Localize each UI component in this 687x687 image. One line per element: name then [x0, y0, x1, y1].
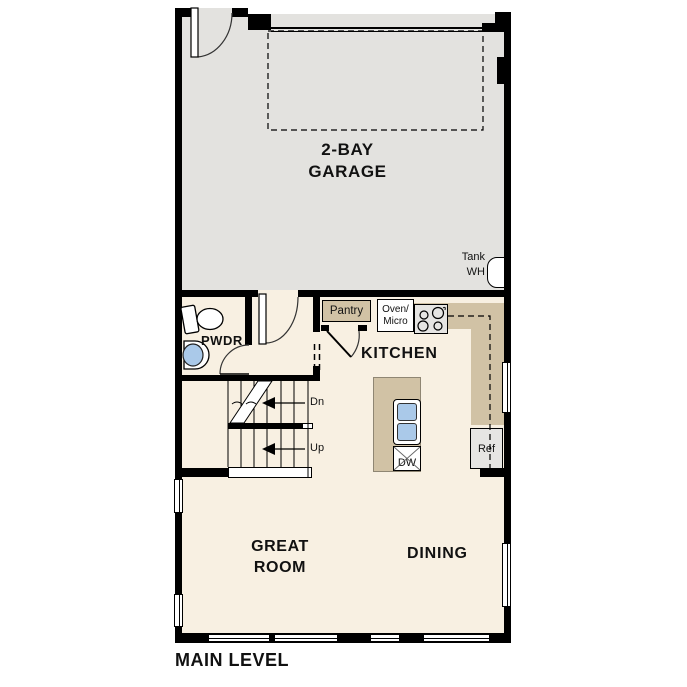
- floor-plan: Pantry Oven/ Micro Ref DW: [0, 0, 687, 687]
- window: [174, 594, 183, 627]
- dishwasher: DW: [393, 446, 421, 471]
- oven-label-line1: Oven/: [382, 304, 409, 316]
- oven-label-line2: Micro: [382, 316, 409, 328]
- wall: [321, 325, 329, 331]
- refrigerator: Ref: [470, 428, 503, 469]
- wall: [298, 290, 511, 297]
- window: [423, 634, 490, 642]
- wall: [175, 8, 192, 17]
- stairs-up-label: Up: [310, 442, 324, 454]
- garage-door: [271, 27, 482, 32]
- garage-door-gap: [192, 8, 232, 17]
- garage-label-line1: 2-BAY: [270, 139, 425, 161]
- refrigerator-label: Ref: [478, 443, 495, 455]
- wall: [497, 57, 504, 84]
- wall: [175, 468, 228, 477]
- dishwasher-label: DW: [398, 457, 416, 469]
- island-sink: [393, 399, 421, 445]
- oven-micro-unit: Oven/ Micro: [377, 299, 414, 332]
- wall: [245, 297, 252, 345]
- entry-door-gap: [258, 290, 298, 297]
- dining-label: DINING: [407, 545, 468, 563]
- window: [502, 362, 511, 413]
- garage-label-line2: GARAGE: [270, 161, 425, 183]
- great-room-label-line1: GREAT: [230, 536, 330, 557]
- cooktop: [414, 304, 448, 334]
- garage-label: 2-BAY GARAGE: [270, 139, 425, 183]
- wall: [175, 375, 320, 381]
- powder-label: PWDR: [201, 333, 243, 348]
- wall: [175, 8, 182, 643]
- window: [370, 634, 400, 642]
- window: [274, 634, 338, 642]
- kitchen-counter-right: [471, 329, 504, 425]
- window: [174, 479, 183, 513]
- sink-basin-bottom: [397, 423, 417, 441]
- great-room-label-line2: ROOM: [230, 557, 330, 578]
- pantry-cabinet: Pantry: [322, 300, 371, 322]
- plan-title: MAIN LEVEL: [175, 650, 289, 671]
- wall: [248, 14, 271, 30]
- stair-divider-end: [302, 423, 313, 429]
- wall: [482, 23, 495, 32]
- stair-landing: [228, 467, 312, 478]
- water-heater-label-line2: WH: [440, 265, 485, 280]
- wall: [175, 290, 258, 297]
- wall: [232, 8, 248, 17]
- stairs-down-label: Dn: [310, 396, 324, 408]
- wall: [313, 297, 320, 332]
- wall: [313, 366, 320, 381]
- pantry-label: Pantry: [330, 305, 363, 317]
- kitchen-label: KITCHEN: [361, 345, 438, 363]
- window: [208, 634, 270, 642]
- water-heater-label-line1: Tank: [440, 250, 485, 265]
- wall: [495, 12, 511, 32]
- water-heater-label: Tank WH: [440, 250, 485, 280]
- window: [502, 543, 511, 607]
- great-room-label: GREAT ROOM: [230, 536, 330, 578]
- sink-basin-top: [397, 403, 417, 421]
- wall: [480, 468, 505, 477]
- wall: [358, 325, 367, 331]
- stair-divider: [228, 423, 303, 429]
